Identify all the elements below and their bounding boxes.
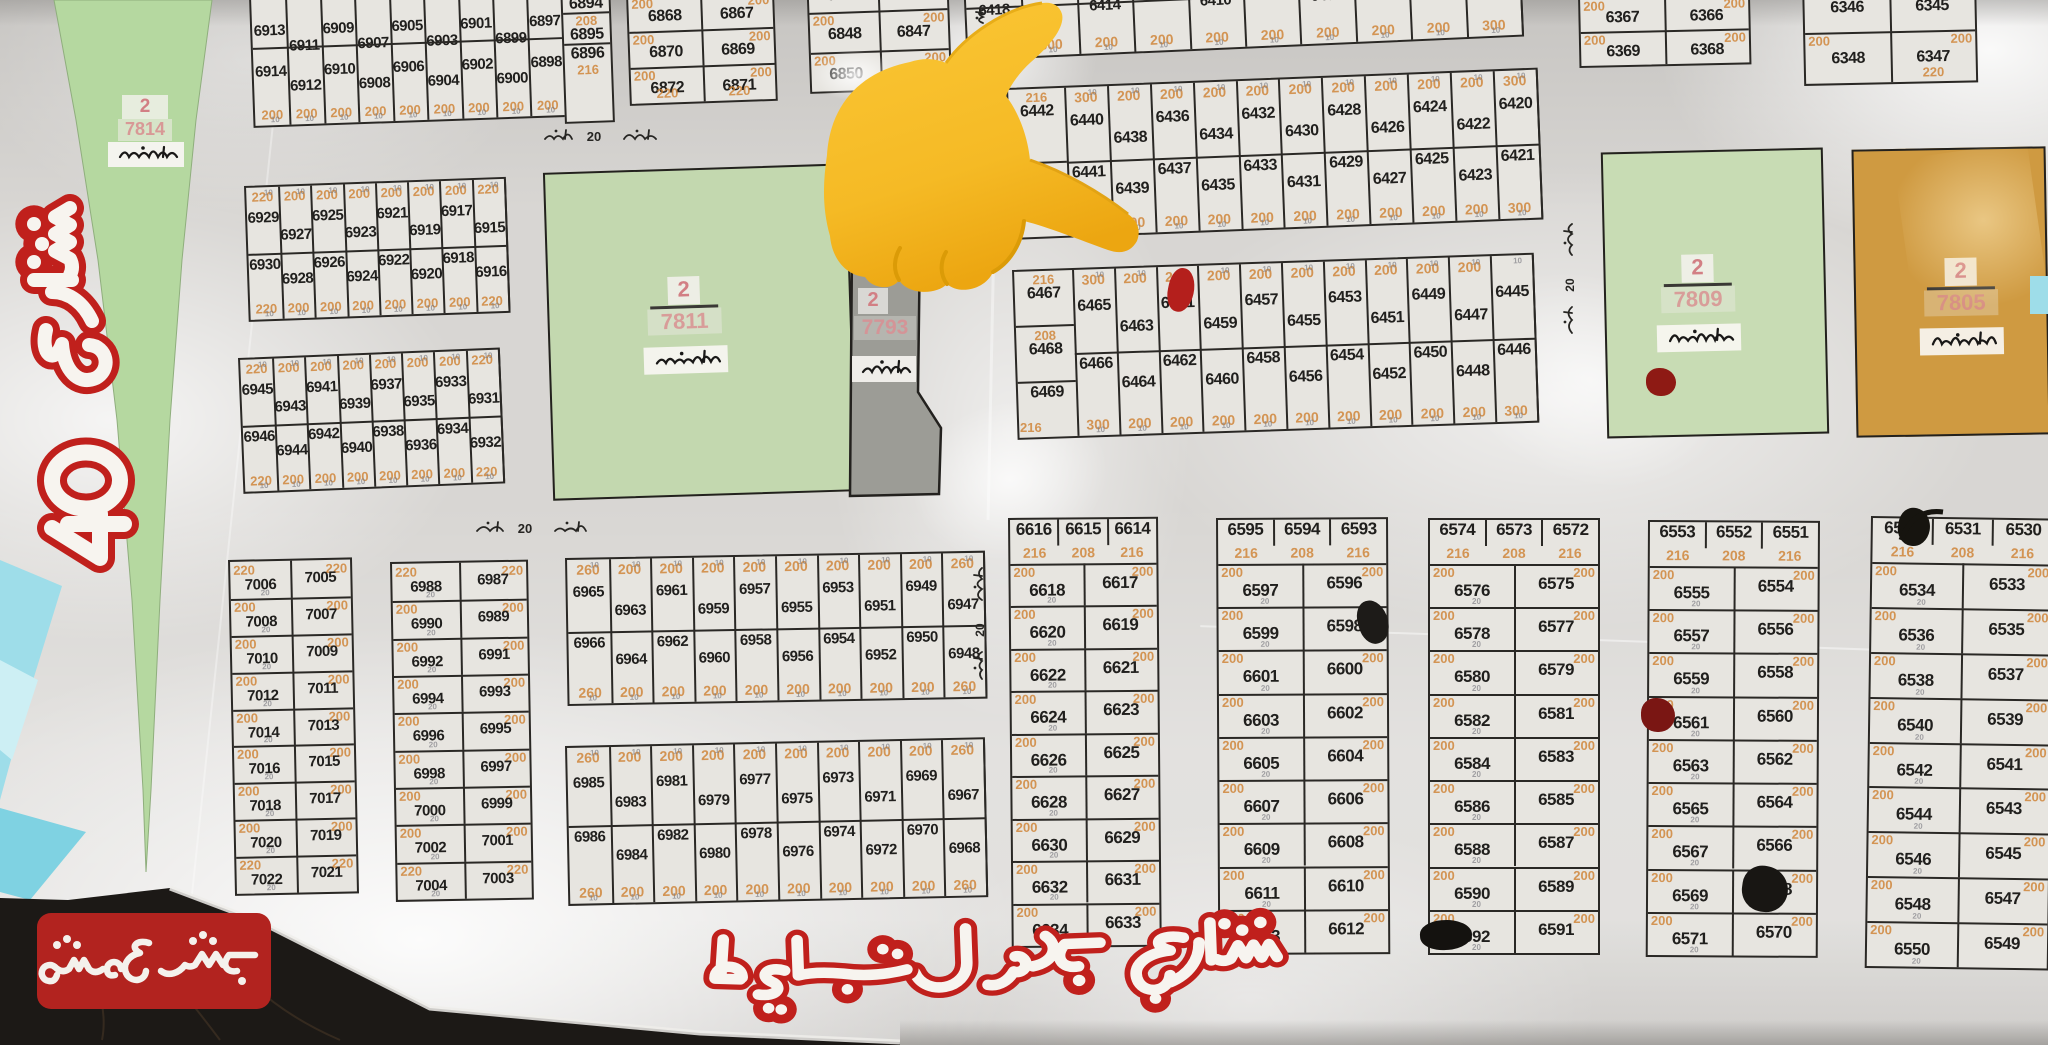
svg-text:20: 20	[1563, 278, 1577, 292]
svg-text:20: 20	[587, 129, 601, 144]
svg-text:20: 20	[973, 623, 987, 637]
svg-text:20: 20	[518, 521, 532, 536]
